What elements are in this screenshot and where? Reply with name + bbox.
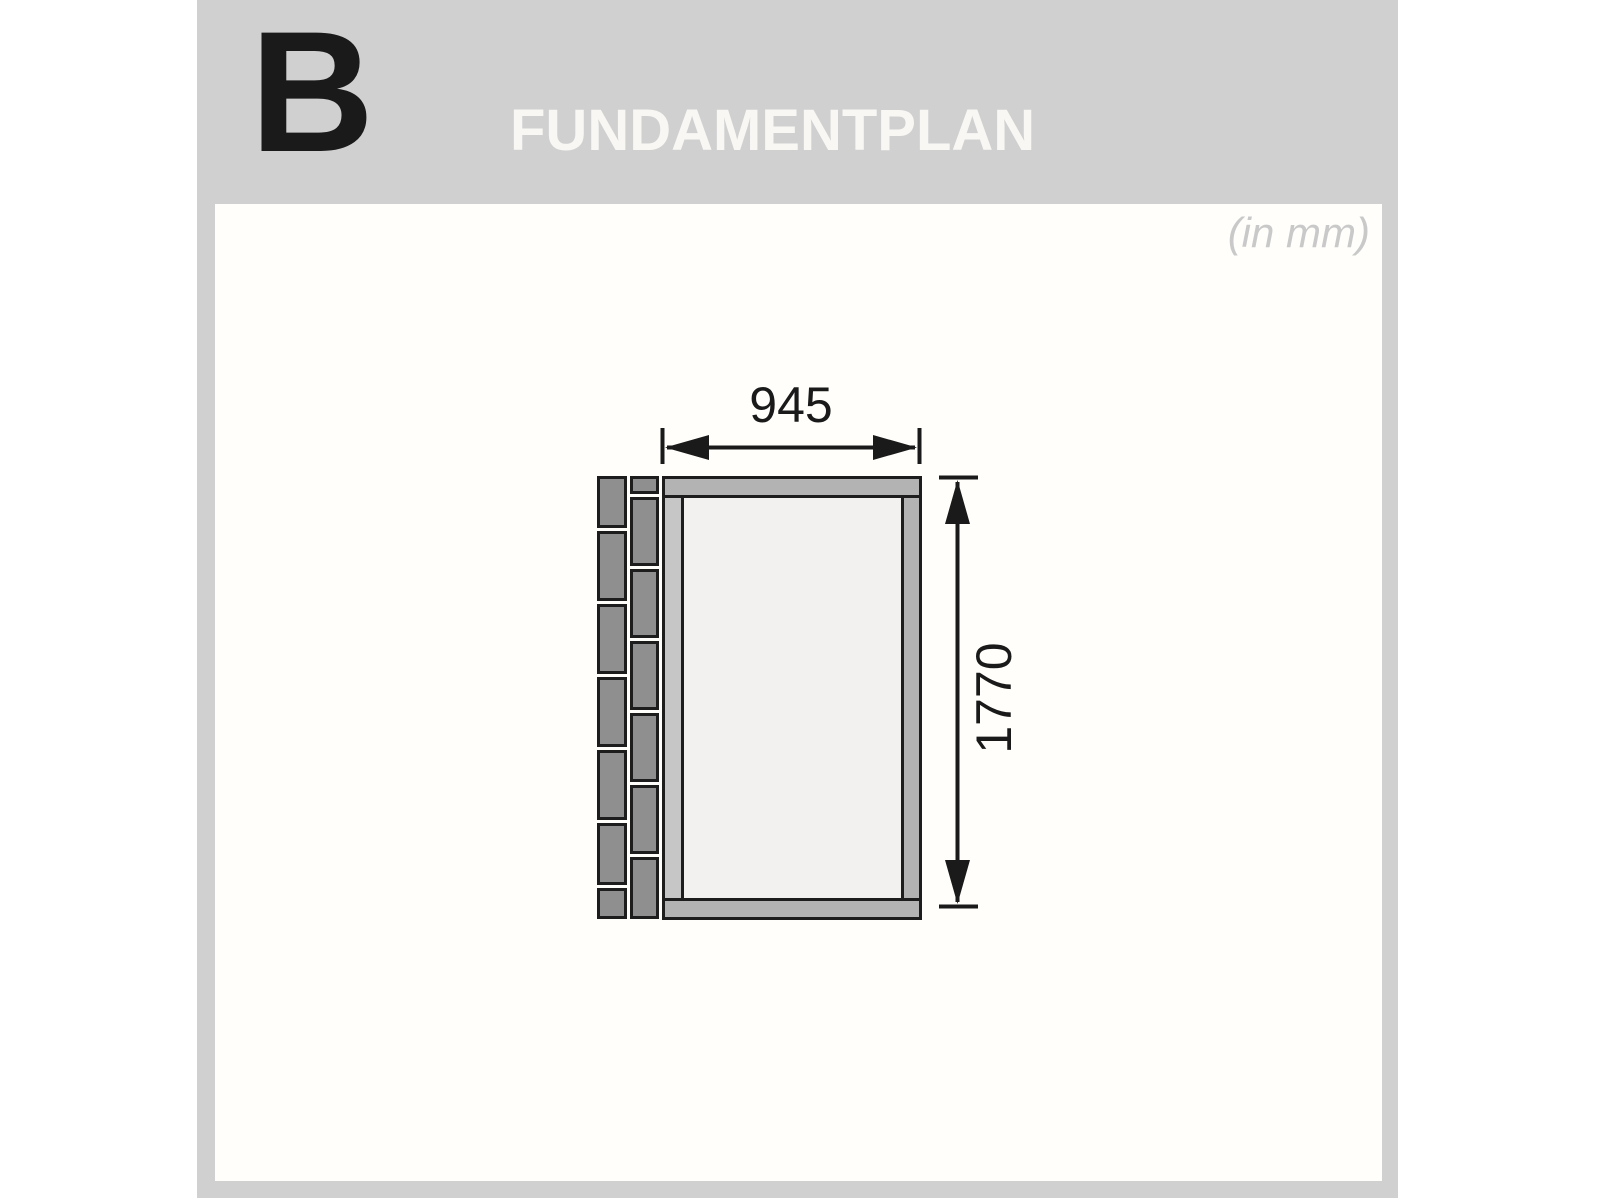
frame-left-beam: [665, 498, 684, 898]
units-note: (in mm): [1228, 212, 1370, 254]
brick: [597, 531, 627, 601]
height-dim-arrow-down: [945, 860, 970, 904]
page-title: FUNDAMENTPLAN: [510, 102, 1035, 160]
brick: [630, 497, 659, 566]
floor-area: [684, 498, 901, 898]
brick: [630, 476, 659, 494]
brick-column-outer: [597, 476, 627, 919]
brick: [630, 713, 659, 782]
brick: [630, 785, 659, 854]
width-dim-arrow-left: [665, 435, 709, 460]
page: B FUNDAMENTPLAN (in mm): [0, 0, 1600, 1200]
foundation-frame: [662, 476, 922, 920]
width-dim-arrow-right: [873, 435, 917, 460]
brick: [597, 677, 627, 747]
section-panel: B FUNDAMENTPLAN (in mm): [197, 0, 1398, 1198]
brick: [630, 569, 659, 638]
width-dimension-label: 945: [662, 380, 920, 430]
brick: [597, 476, 627, 528]
frame-top-beam: [665, 479, 919, 498]
brick-column-inner: [630, 476, 659, 919]
brick: [597, 888, 627, 919]
height-dimension-label: 1770: [969, 598, 1019, 798]
brick: [597, 823, 627, 885]
section-letter: B: [250, 6, 374, 178]
content-area: (in mm): [215, 204, 1382, 1181]
brick: [630, 641, 659, 710]
brick: [597, 604, 627, 674]
brick: [597, 750, 627, 820]
frame-right-beam: [901, 498, 919, 898]
width-dimension: [663, 428, 920, 464]
frame-bottom-beam: [665, 898, 919, 917]
frame-middle: [665, 498, 919, 898]
brick: [630, 857, 659, 919]
height-dim-arrow-up: [945, 480, 970, 524]
